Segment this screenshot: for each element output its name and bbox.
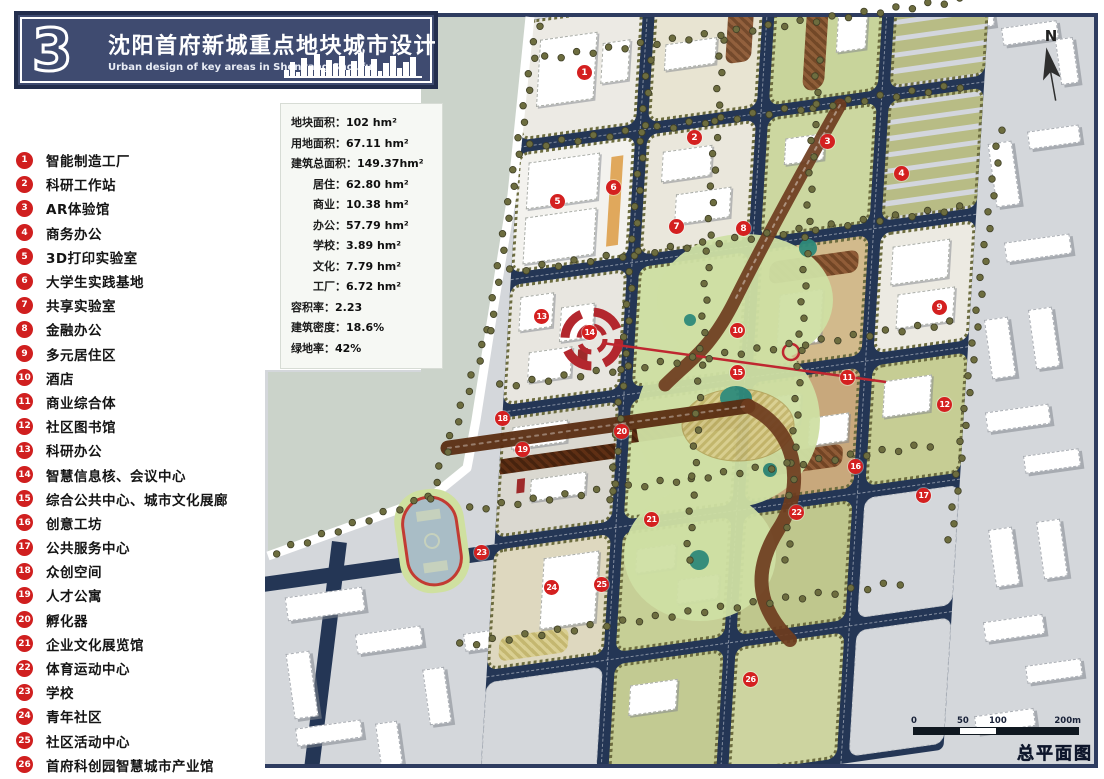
legend-number-badge: 9 [16,345,33,362]
context-building [988,141,1021,208]
block-mall-11-12 [873,220,975,354]
legend-label: 社区图书馆 [46,416,116,436]
legend-number-badge: 19 [16,587,33,604]
block-office-13-14 [503,269,627,406]
legend-item-15: 15综合公共中心、城市文化展廊 [16,487,268,511]
legend-number-badge: 21 [16,635,33,652]
legend-label: 酒店 [46,368,74,388]
legend-label: 智慧信息核、会议中心 [46,465,186,485]
legend-number-badge: 14 [16,466,33,483]
section-number: 3 [32,20,98,80]
legend-label: 创意工坊 [46,513,102,533]
legend-label: 首府科创园智慧城市产业馆 [46,755,214,775]
legend-label: 青年社区 [46,706,102,726]
legend-number-badge: 5 [16,248,33,265]
scale-label-50: 50 [957,716,969,726]
legend-number-badge: 26 [16,756,33,773]
legend-number-badge: 10 [16,369,33,386]
legend-item-23: 23学校 [16,680,268,704]
legend-label: 大学生实践基地 [46,271,144,291]
legend-item-20: 20孵化器 [16,608,268,632]
legend-number-badge: 3 [16,200,33,217]
legend-item-14: 14智慧信息核、会议中心 [16,462,268,486]
site-statistics-box: 地块面积：102 hm²用地面积：67.11 hm²建筑总面积：149.37hm… [280,103,443,369]
legend-number-badge: 12 [16,418,33,435]
facility-legend: 1智能制造工厂2科研工作站3AR体验馆4商务办公53D打印实验室6大学生实践基地… [16,148,268,777]
block-park-core [632,252,748,388]
legend-number-badge: 24 [16,708,33,725]
stat-line: 居住：62.80 hm² [291,175,436,196]
context-building [985,404,1051,433]
block-context-s [849,617,952,757]
map-border-bottom [265,764,1098,768]
planned-district-grid [478,0,992,779]
legend-label: 孵化器 [46,610,88,630]
scale-bar: 0 50 100 200m [913,716,1079,735]
block-maker-18-19 [495,401,619,538]
map-border-right [1094,13,1098,768]
legend-number-badge: 16 [16,514,33,531]
stat-line: 办公：57.79 hm² [291,216,436,237]
legend-number-badge: 13 [16,442,33,459]
stat-line: 容积率：2.23 [291,298,436,319]
legend-item-13: 13科研办公 [16,438,268,462]
legend-label: 众创空间 [46,561,102,581]
legend-item-11: 11商业综合体 [16,390,268,414]
context-building [1023,448,1081,474]
context-building [422,667,452,726]
block-industry-26 [607,649,724,779]
legend-number-badge: 22 [16,660,33,677]
context-building [295,719,363,746]
legend-item-22: 22体育运动中心 [16,656,268,680]
legend-label: 体育运动中心 [46,658,130,678]
block-finance-8 [761,102,877,238]
tree-icon [893,4,900,11]
legend-item-7: 7共享实验室 [16,293,268,317]
block-park-south [624,384,740,520]
context-building [984,317,1016,380]
stat-line: 绿地率：42% [291,339,436,360]
context-building [286,651,319,720]
legend-item-16: 16创意工坊 [16,511,268,535]
legend-label: 企业文化展览馆 [46,634,144,654]
legend-label: 社区活动中心 [46,731,130,751]
legend-label: 商务办公 [46,223,102,243]
context-building [1004,234,1072,263]
legend-item-17: 17公共服务中心 [16,535,268,559]
legend-number-badge: 25 [16,732,33,749]
legend-number-badge: 17 [16,539,33,556]
legend-number-badge: 4 [16,224,33,241]
legend-item-9: 9多元居住区 [16,342,268,366]
legend-item-18: 18众创空间 [16,559,268,583]
legend-item-25: 25社区活动中心 [16,729,268,753]
legend-item-2: 2科研工作站 [16,172,268,196]
context-building [1028,307,1060,370]
legend-label: 科研工作站 [46,174,116,194]
legend-item-12: 12社区图书馆 [16,414,268,438]
block-school-23 [487,534,611,671]
urban-design-poster: N 0 50 100 200m 总平面图 [0,0,1104,779]
legend-label: 学校 [46,682,74,702]
stat-line: 建筑总面积：149.37hm² [291,154,436,175]
block-residential-26e [728,632,845,774]
scale-bar-graphic [913,727,1079,735]
legend-label: 综合公共中心、城市文化展廊 [46,489,228,509]
tree-icon [925,0,932,6]
block-residential-s [736,500,852,636]
block-creative-16-17 [744,367,860,503]
title-block: 3 沈阳首府新城重点地块城市设计 Urban design of key are… [14,11,438,89]
legend-item-8: 8金融办公 [16,317,268,341]
block-lab-7 [640,119,756,255]
stat-line: 学校：3.89 hm² [291,236,436,257]
legend-number-badge: 2 [16,176,33,193]
north-arrow-icon [1031,43,1071,105]
legend-label: 共享实验室 [46,295,116,315]
legend-item-10: 10酒店 [16,366,268,390]
legend-item-3: 3AR体验馆 [16,196,268,220]
legend-item-4: 4商务办公 [16,221,268,245]
legend-number-badge: 20 [16,611,33,628]
legend-label: 3D打印实验室 [46,247,138,267]
stat-line: 用地面积：67.11 hm² [291,134,436,155]
scale-label-0: 0 [911,716,917,726]
plan-title: 总平面图 [1017,739,1093,764]
block-hotel-10-15 [753,235,869,371]
context-building [983,614,1045,642]
block-youth-24-25 [616,517,732,653]
north-arrow: N [1031,27,1071,111]
title-inner-frame: 3 沈阳首府新城重点地块城市设计 Urban design of key are… [20,17,432,83]
tree-icon [909,5,916,12]
block-context-se [857,485,959,619]
skyline-icon [284,52,422,78]
block-lab-5-6 [511,136,635,273]
legend-number-badge: 18 [16,563,33,580]
legend-item-6: 6大学生实践基地 [16,269,268,293]
legend-item-1: 1智能制造工厂 [16,148,268,172]
block-factory-1 [519,4,643,141]
context-road [259,543,509,593]
tree-icon [956,0,963,1]
legend-item-19: 19人才公寓 [16,583,268,607]
legend-label: 商业综合体 [46,392,116,412]
scale-labels: 0 50 100 200m [913,716,1079,727]
legend-item-24: 24青年社区 [16,704,268,728]
legend-number-badge: 11 [16,393,33,410]
block-context-sw [478,666,603,779]
block-research-2 [648,0,764,123]
context-building [1036,519,1068,580]
stat-line: 文化：7.79 hm² [291,257,436,278]
legend-number-badge: 7 [16,297,33,314]
north-label: N [1031,27,1071,45]
scale-label-200m: 200m [1054,716,1081,726]
context-building [1027,124,1081,149]
block-residential-9 [881,87,983,221]
legend-item-5: 53D打印实验室 [16,245,268,269]
context-building [375,721,403,768]
legend-item-26: 26首府科创园智慧城市产业馆 [16,753,268,777]
context-building [1025,658,1083,684]
legend-number-badge: 1 [16,152,33,169]
context-building [355,626,423,655]
legend-number-badge: 15 [16,490,33,507]
legend-label: 人才公寓 [46,585,102,605]
legend-number-badge: 6 [16,273,33,290]
legend-label: 公共服务中心 [46,537,130,557]
legend-item-21: 21企业文化展览馆 [16,632,268,656]
stat-line: 工厂：6.72 hm² [291,277,436,298]
legend-label: 智能制造工厂 [46,150,130,170]
stat-line: 地块面积：102 hm² [291,113,436,134]
legend-number-badge: 23 [16,684,33,701]
legend-label: 金融办公 [46,319,102,339]
map-border-top [418,13,1098,17]
block-sports-22 [865,352,967,486]
legend-number-badge: 8 [16,321,33,338]
legend-label: 科研办公 [46,440,102,460]
context-building [988,527,1020,588]
tree-icon [941,1,948,8]
context-building [285,587,366,622]
stat-line: 商业：10.38 hm² [291,195,436,216]
legend-label: AR体验馆 [46,198,110,218]
stat-line: 建筑密度：18.6% [291,318,436,339]
legend-label: 多元居住区 [46,344,116,364]
scale-label-100: 100 [989,716,1007,726]
